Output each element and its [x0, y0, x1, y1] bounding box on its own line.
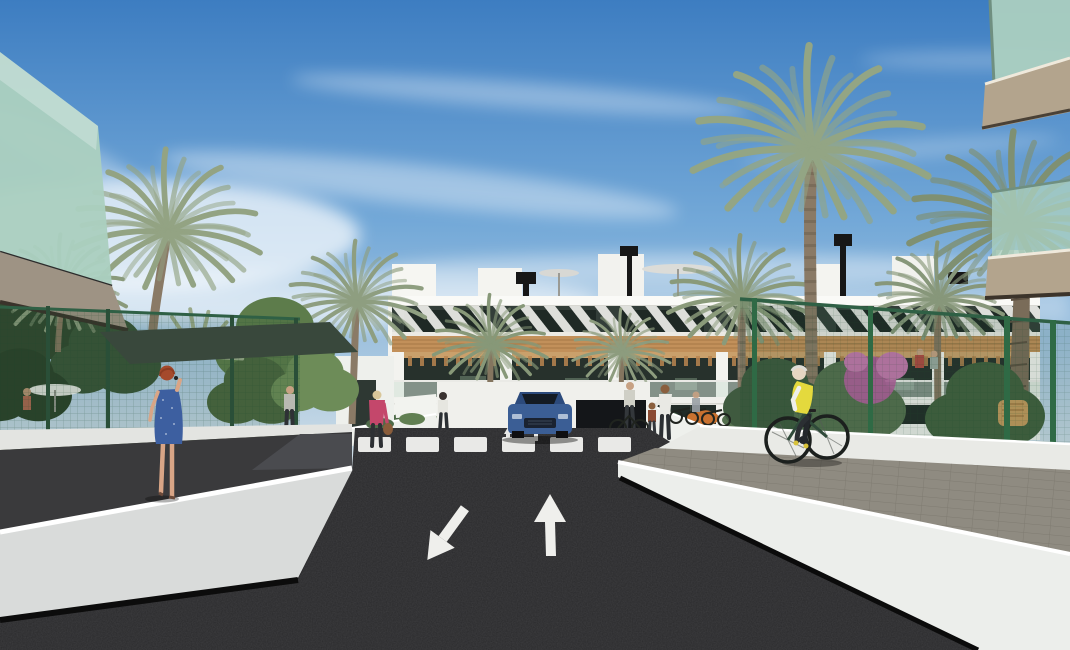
- background-person-right: [692, 392, 700, 413]
- balcony-glass-lower: [992, 180, 1070, 258]
- scene-render: Sunny architectural rendering of a moder…: [0, 0, 1070, 650]
- render-canvas: Sunny architectural rendering of a moder…: [0, 0, 1070, 650]
